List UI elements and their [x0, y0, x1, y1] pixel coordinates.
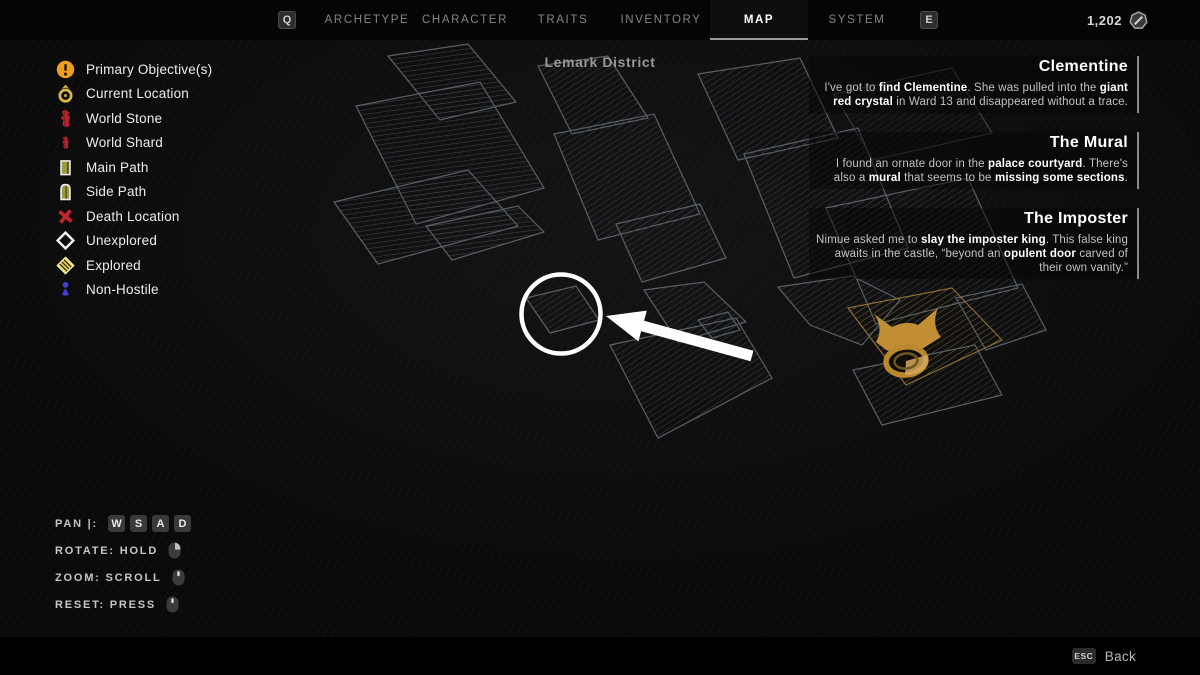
world-stone-icon	[55, 108, 76, 129]
legend-label: Non-Hostile	[86, 282, 159, 297]
reset-label: RESET: PRESS	[55, 599, 156, 611]
quest-title: The Mural	[815, 134, 1128, 152]
map-legend: Primary Objective(s) Current Location Wo…	[55, 59, 212, 300]
pan-label: PAN |:	[55, 518, 98, 530]
legend-label: Explored	[86, 258, 141, 273]
pan-hint: PAN |: W S A D	[55, 515, 191, 532]
map-screen: Q ARCHETYPE CHARACTER TRAITS INVENTORY M…	[0, 0, 1200, 675]
key-a: A	[152, 515, 169, 532]
legend-label: Current Location	[86, 86, 189, 101]
prev-tab-keycap[interactable]: Q	[278, 11, 296, 29]
explored-icon	[55, 255, 76, 276]
wsad-keys: W S A D	[108, 515, 191, 532]
legend-item-death-location: Death Location	[55, 206, 212, 227]
tab-inventory[interactable]: INVENTORY	[612, 0, 710, 40]
legend-label: Death Location	[86, 209, 180, 224]
current-location-icon	[55, 83, 76, 104]
quest-title: Clementine	[815, 58, 1128, 76]
world-shard-icon	[55, 132, 76, 153]
tab-archetype[interactable]: ARCHETYPE	[318, 0, 416, 40]
map-viewport[interactable]: Lemark District Primary Objective(s) Cur…	[0, 40, 1200, 637]
legend-label: Side Path	[86, 184, 146, 199]
unexplored-icon	[55, 230, 76, 251]
quest-log: Clementine I've got to find Clementine. …	[809, 56, 1139, 279]
quest-description: Nimue asked me to slay the imposter king…	[815, 233, 1128, 275]
key-w: W	[108, 515, 125, 532]
rotate-hint: ROTATE: HOLD	[55, 542, 191, 559]
quest-description: I found an ornate door in the palace cou…	[815, 157, 1128, 185]
menu-tabs: Q ARCHETYPE CHARACTER TRAITS INVENTORY M…	[0, 0, 938, 40]
legend-item-non-hostile: Non-Hostile	[55, 280, 212, 301]
legend-label: Primary Objective(s)	[86, 62, 212, 77]
legend-item-side-path: Side Path	[55, 182, 212, 203]
key-d: D	[174, 515, 191, 532]
legend-label: World Shard	[86, 135, 163, 150]
currency-display: 1,202	[1087, 0, 1200, 40]
quest-entry-clementine: Clementine I've got to find Clementine. …	[809, 56, 1139, 113]
tab-system[interactable]: SYSTEM	[808, 0, 906, 40]
rotate-label: ROTATE: HOLD	[55, 545, 158, 557]
legend-item-unexplored: Unexplored	[55, 231, 212, 252]
mouse-wheel-icon	[172, 569, 185, 586]
tab-character[interactable]: CHARACTER	[416, 0, 514, 40]
legend-item-world-shard: World Shard	[55, 133, 212, 154]
key-s: S	[130, 515, 147, 532]
tab-traits[interactable]: TRAITS	[514, 0, 612, 40]
next-tab-keycap[interactable]: E	[920, 11, 938, 29]
back-button[interactable]: Back	[1105, 649, 1136, 664]
death-location-icon	[55, 206, 76, 227]
map-control-hints: PAN |: W S A D ROTATE: HOLD ZOOM: SCROLL	[55, 515, 191, 613]
legend-item-explored: Explored	[55, 255, 212, 276]
zoom-label: ZOOM: SCROLL	[55, 572, 162, 584]
quest-description: I've got to find Clementine. She was pul…	[815, 81, 1128, 109]
reset-hint: RESET: PRESS	[55, 596, 191, 613]
non-hostile-icon	[55, 279, 76, 300]
esc-keycap[interactable]: ESC	[1072, 648, 1096, 664]
top-menu-bar: Q ARCHETYPE CHARACTER TRAITS INVENTORY M…	[0, 0, 1200, 40]
scrap-coin-icon	[1129, 11, 1148, 30]
side-path-icon	[55, 181, 76, 202]
legend-item-primary-objective: Primary Objective(s)	[55, 59, 212, 80]
legend-item-current-location: Current Location	[55, 84, 212, 105]
legend-label: Main Path	[86, 160, 149, 175]
quest-title: The Imposter	[815, 210, 1128, 228]
legend-item-world-stone: World Stone	[55, 108, 212, 129]
quest-entry-the-mural: The Mural I found an ornate door in the …	[809, 132, 1139, 189]
quest-entry-the-imposter: The Imposter Nimue asked me to slay the …	[809, 208, 1139, 279]
mouse-wheel-icon	[166, 596, 179, 613]
bottom-bar: ESC Back	[0, 637, 1200, 675]
legend-label: Unexplored	[86, 233, 157, 248]
zoom-hint: ZOOM: SCROLL	[55, 569, 191, 586]
tab-map[interactable]: MAP	[710, 0, 808, 40]
primary-objective-icon	[55, 59, 76, 80]
main-path-icon	[55, 157, 76, 178]
legend-label: World Stone	[86, 111, 162, 126]
legend-item-main-path: Main Path	[55, 157, 212, 178]
currency-amount: 1,202	[1087, 13, 1122, 28]
mouse-right-button-icon	[168, 542, 181, 559]
